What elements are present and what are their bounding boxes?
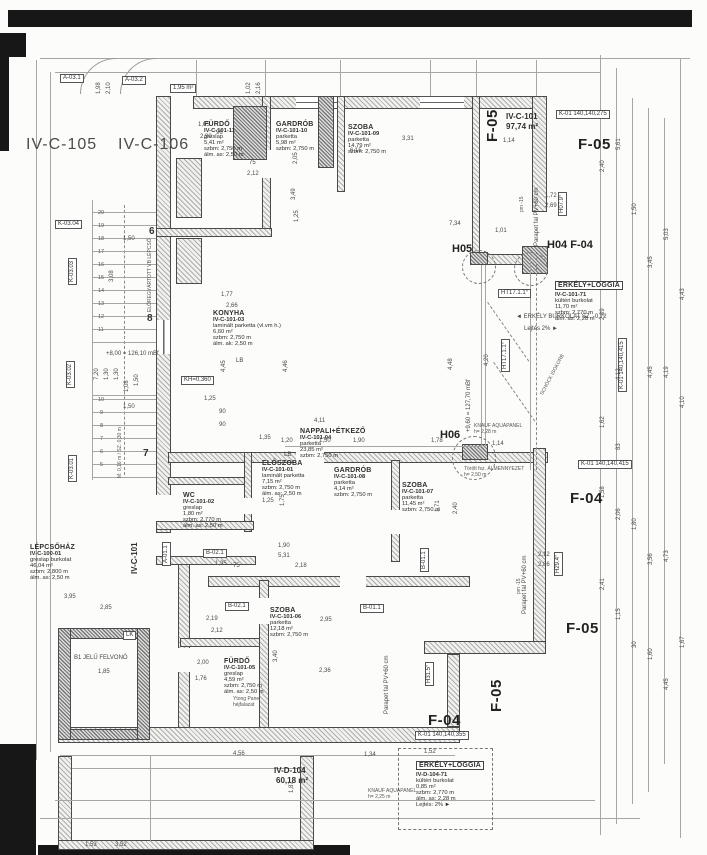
stair-step-number: 9 bbox=[100, 410, 103, 416]
boxed-mark: H29.4° bbox=[554, 552, 563, 576]
room-name: ELŐSZOBA bbox=[262, 460, 305, 467]
wall bbox=[337, 96, 345, 192]
door-opening bbox=[340, 576, 366, 587]
unit-area-label: IV-C-101 bbox=[506, 112, 538, 121]
dimension-label: 4,48 bbox=[448, 358, 455, 370]
facade-mark: F-05 bbox=[578, 136, 611, 154]
dimension-label: 75 bbox=[249, 160, 256, 167]
annotation-small: héjfalazat bbox=[233, 703, 254, 709]
dimension-label: 1,08 bbox=[124, 380, 131, 392]
boxed-mark: K-01 140,140,275 bbox=[556, 110, 610, 119]
dimension-label: 1,34 bbox=[364, 752, 376, 759]
dimension-label: 2,69 bbox=[545, 203, 557, 210]
wall bbox=[424, 641, 546, 654]
room-IV-C-101-06: SZOBAIV-C-101-06parketta12,18 m²szbm: 2,… bbox=[270, 607, 308, 638]
dimension-line bbox=[55, 800, 595, 801]
dimension-label: 4,20 bbox=[484, 354, 491, 366]
boxed-mark: K-01 140,140,355 bbox=[415, 731, 469, 740]
annotation: ◄ ERKÉLY BURKOLAT SZ. -0,72 bbox=[516, 314, 607, 321]
dimension-line bbox=[150, 756, 151, 842]
room-name: SZOBA bbox=[270, 607, 308, 614]
stair-step-number: 12 bbox=[98, 314, 104, 320]
dimension-label: 4,73 bbox=[664, 550, 671, 562]
annotation-small: h= 2,28 m bbox=[474, 430, 496, 436]
dimension-label: 2,41 bbox=[600, 578, 607, 590]
dimension-label: 7,20 bbox=[94, 368, 101, 380]
dimension-label: 2,40 bbox=[600, 160, 607, 172]
dimension-line bbox=[430, 60, 431, 96]
dimension-label: 4,19 bbox=[664, 366, 671, 378]
boxed-mark: HT17.1.1° bbox=[501, 339, 510, 372]
stair-step-number: 10 bbox=[98, 397, 104, 403]
dimension-label: 4,56 bbox=[233, 751, 245, 758]
stair-step-number: 11 bbox=[98, 327, 104, 333]
dimension-label: 2,12 bbox=[211, 628, 223, 635]
stair-step-number: 16 bbox=[98, 262, 104, 268]
scan-artifact bbox=[0, 744, 36, 855]
room-IV-D-104-71: ERKÉLY+LOGGIAIV-D-104-71kültéri burkolat… bbox=[416, 754, 484, 808]
stair-step-number: 17 bbox=[98, 249, 104, 255]
dimension-label: 4,43 bbox=[680, 288, 687, 300]
boxed-mark: LK bbox=[123, 631, 136, 640]
dimension-label: 75 bbox=[233, 563, 240, 570]
dimension-label: 7,34 bbox=[449, 221, 461, 228]
unit-area-label: IV-D-104 bbox=[274, 766, 306, 775]
dimension-line bbox=[40, 58, 690, 59]
dimension-label: 1,50 bbox=[123, 236, 135, 243]
dimension-label: 1,25 bbox=[204, 396, 216, 403]
dimension-label: 3,40 bbox=[273, 650, 280, 662]
dimension-label: 2,40 bbox=[453, 502, 460, 514]
dimension-label: 90 bbox=[219, 422, 226, 429]
annotation-small: pm -15 bbox=[517, 578, 523, 594]
dimension-label: 1,14 bbox=[503, 138, 515, 145]
dimension-label: 83 bbox=[616, 443, 623, 450]
room-name: KONYHA bbox=[213, 310, 281, 317]
dimension-label: 1,90 bbox=[278, 543, 290, 550]
boxed-mark: A-01.1 bbox=[162, 542, 171, 566]
annotation: LB bbox=[236, 358, 243, 365]
dimension-label: 1,14 bbox=[492, 441, 504, 448]
dimension-label: 96 bbox=[216, 130, 223, 137]
dimension-label: 2,66 bbox=[226, 303, 238, 310]
dimension-line bbox=[60, 755, 455, 756]
dimension-label: 3,95 bbox=[64, 594, 76, 601]
dimension-label: 2,95 bbox=[320, 617, 332, 624]
room-name: NAPPALI+ÉTKEZŐ bbox=[300, 428, 365, 435]
dimension-label: 2,86 bbox=[538, 562, 550, 569]
dimension-label: 1,67 bbox=[680, 636, 687, 648]
boxed-mark: B-02.1 bbox=[203, 549, 227, 558]
dimension-label: 5,31 bbox=[278, 553, 290, 560]
facade-mark: F-04 bbox=[570, 490, 603, 508]
dimension-label: 2,85 bbox=[100, 605, 112, 612]
boxed-mark: KH=0,360 bbox=[181, 376, 214, 385]
wall bbox=[180, 638, 260, 647]
dimension-label: 1,72 bbox=[545, 193, 557, 200]
dimension-label: 1,35 bbox=[215, 561, 227, 568]
door-opening bbox=[259, 598, 269, 624]
dimension-label: 1,58 bbox=[600, 486, 607, 498]
annotation: +8,00 = 126,10 mBf bbox=[106, 351, 159, 358]
window bbox=[420, 96, 464, 109]
dimension-line bbox=[36, 60, 37, 760]
dimension-label: 4,45 bbox=[221, 360, 228, 372]
dimension-label: 1,75 bbox=[280, 494, 287, 506]
annotation: Parapet fal PV+60 cm bbox=[522, 555, 529, 614]
stair-step-number: 5 bbox=[100, 462, 103, 468]
dimension-label: 1,01 bbox=[495, 228, 507, 235]
room-detail: álm. as: 2,50 m bbox=[224, 689, 264, 695]
dimension-label: 6,15 bbox=[350, 148, 362, 155]
annotation: LB bbox=[284, 452, 291, 459]
dimension-line bbox=[664, 118, 665, 764]
dimension-line bbox=[72, 768, 302, 769]
annotation-small: ELŐREGYÁRTOTT VB LÉPCSŐ bbox=[148, 238, 154, 312]
annotation: B1 JELŰ FELVONÓ bbox=[74, 655, 128, 662]
dimension-label: 3,56 bbox=[648, 553, 655, 565]
kitchen-fixture bbox=[176, 158, 202, 218]
boxed-mark: H07.9° bbox=[558, 192, 567, 216]
dimension-label: 3,49 bbox=[291, 188, 298, 200]
dimension-label: 1,98 bbox=[96, 82, 103, 94]
wall bbox=[472, 96, 480, 258]
stair-step-number: 13 bbox=[98, 301, 104, 307]
stair-step-number: 7 bbox=[100, 436, 103, 442]
wall bbox=[156, 228, 272, 237]
stair-step-number: 8 bbox=[100, 423, 103, 429]
unit-area-label: IV-C-101 bbox=[130, 542, 139, 574]
room-IV-C-101-03: KONYHAIV-C-101-03laminált parketta (vl.v… bbox=[213, 310, 281, 347]
grid-number: 7 bbox=[143, 448, 149, 460]
dimension-label: 4,46 bbox=[283, 360, 290, 372]
stair-tread-line bbox=[92, 342, 156, 343]
dimension-label: 90 bbox=[219, 409, 226, 416]
dimension-label: 3,08 bbox=[109, 270, 116, 282]
room-name: FÜRDŐ bbox=[224, 658, 264, 665]
dimension-label: 1,02 bbox=[246, 82, 253, 94]
kitchen-fixture bbox=[176, 238, 202, 284]
room-name: SZOBA bbox=[348, 124, 386, 131]
annotation-small: pm -15 bbox=[520, 196, 526, 212]
dimension-label: 1,50 bbox=[134, 374, 141, 386]
dimension-label: 2,06 bbox=[616, 508, 623, 520]
dimension-label: 1,78 bbox=[431, 438, 443, 445]
dimension-label: 1,50 bbox=[319, 438, 331, 445]
dimension-label: 4,45 bbox=[664, 678, 671, 690]
room-detail: álm. as: 2,50 m bbox=[30, 575, 75, 581]
boxed-mark: A-03.1 bbox=[60, 74, 84, 83]
joint-mark: H05 bbox=[452, 243, 472, 256]
dimension-label: 4,11 bbox=[314, 418, 325, 425]
dimension-label: 2,16 bbox=[256, 82, 263, 94]
window bbox=[156, 320, 171, 354]
stair-step-number: 14 bbox=[98, 288, 104, 294]
room-detail: szbm: 2,750 m bbox=[300, 453, 365, 459]
dimension-label: 2,05 bbox=[293, 152, 300, 164]
dimension-line bbox=[600, 55, 601, 835]
facade-mark: F-05 bbox=[566, 620, 599, 638]
dimension-label: 1,30 bbox=[104, 368, 111, 380]
dimension-label: 3,52 bbox=[115, 842, 127, 849]
dimension-label: 1,65 bbox=[198, 122, 210, 129]
dimension-line bbox=[476, 60, 477, 96]
facade-mark: F-04 bbox=[428, 712, 461, 730]
dimension-label: 2,19 bbox=[206, 616, 218, 623]
room-IV-C-100-01: LÉPCSŐHÁZIV-C-100-01greslap burkolat46,0… bbox=[30, 544, 75, 581]
dimension-line bbox=[340, 60, 341, 96]
room-detail: álm. ak: 2,50 m bbox=[213, 341, 281, 347]
room-detail: álm. as: 2,50 m bbox=[183, 523, 223, 529]
dimension-label: 1,71 bbox=[435, 500, 442, 512]
grid-number: 8 bbox=[147, 313, 153, 325]
wall bbox=[168, 477, 246, 485]
door-opening bbox=[391, 510, 400, 534]
dimension-label: 2,12 bbox=[247, 171, 259, 178]
room-name: SZOBA bbox=[402, 482, 440, 489]
dimension-line bbox=[536, 60, 537, 96]
annotation: Parapet fal PV+60 cm bbox=[534, 187, 541, 246]
elevator-wall bbox=[137, 628, 150, 740]
room-IV-C-101-10: GARDRÓBIV-C-101-10parketta5,98 m²szbm: 2… bbox=[276, 121, 314, 152]
door-opening bbox=[156, 495, 171, 521]
annotation-small: M: 0,16 m / SZ: 0,30 m bbox=[118, 427, 124, 478]
dimension-label: 1,25 bbox=[262, 498, 274, 505]
dimension-label: 2,90 bbox=[200, 134, 212, 141]
boxed-mark: A-03.2 bbox=[122, 76, 146, 85]
boxed-mark: K-03.01 bbox=[68, 455, 77, 482]
dimension-label: 4,12 bbox=[616, 368, 623, 380]
dimension-line bbox=[680, 58, 681, 838]
annotation: Parapet fal PV+60 cm bbox=[384, 655, 391, 714]
room-IV-C-101-08: GARDRÓBIV-C-101-08parketta4,14 m²szbm: 2… bbox=[334, 467, 372, 498]
grid-number: 6 bbox=[149, 226, 155, 238]
dimension-line bbox=[481, 265, 482, 446]
stair-step-number: 18 bbox=[98, 236, 104, 242]
dimension-line bbox=[265, 60, 266, 96]
dimension-label: 2,18 bbox=[295, 563, 307, 570]
door-opening bbox=[244, 498, 252, 514]
joint-mark: H04 F-04 bbox=[547, 239, 593, 252]
dimension-line bbox=[50, 72, 51, 752]
dimension-line bbox=[40, 818, 640, 819]
unit-area-label: 97,74 m² bbox=[506, 122, 538, 131]
dimension-label: 1,62 bbox=[600, 416, 607, 428]
dimension-label: 1,52 bbox=[424, 749, 436, 756]
boxed-mark: 1,95 m² bbox=[170, 84, 196, 93]
room-IV-C-101-05: FÜRDŐIV-C-101-05greslap4,59 m²szbm: 2,75… bbox=[224, 658, 264, 695]
room-detail: szbm: 2,750 m bbox=[270, 632, 308, 638]
dimension-label: 5,03 bbox=[664, 228, 671, 240]
neighbor-unit-label: IV-C-106 bbox=[118, 136, 189, 155]
dimension-label: 1,25 bbox=[294, 210, 301, 222]
dimension-label: 1,90 bbox=[353, 438, 365, 445]
dimension-label: 2,09 bbox=[600, 308, 607, 320]
stair-tread-line bbox=[92, 477, 156, 478]
dimension-label: 1,87 bbox=[289, 781, 296, 793]
stair-step-number: 6 bbox=[100, 449, 103, 455]
room-detail: szbm: 2,750 m bbox=[334, 492, 372, 498]
dimension-label: 1,77 bbox=[221, 292, 233, 299]
boxed-mark: K-03.04 bbox=[55, 220, 82, 229]
floor-plan-sheet: FÜRDŐIV-C-101-11greslap5,41 m²szbm: 2,75… bbox=[0, 0, 707, 855]
scan-artifact bbox=[8, 10, 692, 27]
boxed-mark: K-01 140,140,415 bbox=[618, 338, 627, 392]
neighbor-unit-label: IV-C-105 bbox=[26, 136, 97, 155]
door-opening bbox=[178, 648, 190, 672]
wall bbox=[208, 576, 470, 587]
scan-artifact bbox=[0, 33, 9, 151]
room-name: ERKÉLY+LOGGIA bbox=[416, 761, 484, 770]
boxed-mark: K-03.03 bbox=[68, 258, 77, 285]
room-name: LÉPCSŐHÁZ bbox=[30, 544, 75, 551]
boxed-mark: B-02.1 bbox=[225, 602, 249, 611]
room-detail: Lejtés: 2% ► bbox=[416, 802, 484, 808]
boxed-mark: B-01.1 bbox=[360, 604, 384, 613]
stair-step-number: 15 bbox=[98, 275, 104, 281]
dimension-label: 1,30 bbox=[114, 368, 121, 380]
annotation-small: SCHÖCK ISOKORB bbox=[540, 354, 567, 397]
room-detail: álm. as: 2,50 m bbox=[204, 152, 244, 158]
dashed-line bbox=[124, 205, 125, 475]
dimension-label: 2,10 bbox=[106, 82, 113, 94]
dimension-label: 4,10 bbox=[680, 396, 687, 408]
dimension-label: 1,50 bbox=[123, 404, 135, 411]
dimension-label: 1,80 bbox=[632, 518, 639, 530]
dimension-label: 1,60 bbox=[648, 648, 655, 660]
wall bbox=[156, 96, 171, 533]
dimension-label: 1,76 bbox=[195, 676, 207, 683]
boxed-mark: K-03.02 bbox=[66, 361, 75, 388]
shaft bbox=[318, 96, 334, 168]
dashed-line bbox=[536, 258, 537, 470]
room-name: ERKÉLY+LOGGIA bbox=[555, 281, 623, 290]
dimension-label: 5,61 bbox=[616, 138, 623, 150]
room-name: GARDRÓB bbox=[276, 121, 314, 128]
dimension-label: 4,45 bbox=[648, 366, 655, 378]
detail-circle-h04 bbox=[514, 252, 548, 286]
elevator-wall bbox=[58, 628, 71, 740]
boxed-mark: B-01.1 bbox=[420, 548, 429, 572]
dimension-label: 1,53 bbox=[85, 842, 97, 849]
dimension-label: 30 bbox=[632, 641, 639, 648]
stair-step-number: 19 bbox=[98, 223, 104, 229]
annotation-small: h= 2,25 m bbox=[368, 795, 390, 801]
wall bbox=[58, 756, 72, 848]
slope-line bbox=[493, 362, 535, 422]
dimension-label: 1,35 bbox=[259, 435, 271, 442]
dimension-label: 3,45 bbox=[648, 256, 655, 268]
wall bbox=[533, 448, 546, 654]
room-IV-C-101-02: WCIV-C-101-02greslap1,80 m²szbm: 2,770 m… bbox=[183, 492, 223, 529]
dimension-line bbox=[648, 108, 649, 792]
room-name: GARDRÓB bbox=[334, 467, 372, 474]
annotation: 1,85 bbox=[98, 669, 110, 676]
room-IV-C-101-01: ELŐSZOBAIV-C-101-01laminált parketta7,15… bbox=[262, 460, 305, 497]
stair-step-number: 20 bbox=[98, 210, 104, 216]
room-name: WC bbox=[183, 492, 223, 499]
annotation-small: h= 2,50 m bbox=[464, 473, 486, 479]
dimension-label: 1,15 bbox=[616, 608, 623, 620]
dimension-label: 2,12 bbox=[538, 552, 550, 559]
dimension-label: 2,00 bbox=[197, 660, 209, 667]
facade-mark: F-05 bbox=[488, 679, 506, 712]
boxed-mark: HT17.1.1° bbox=[498, 289, 531, 298]
facade-mark: F-05 bbox=[484, 109, 502, 142]
wall bbox=[244, 452, 252, 532]
boxed-mark: H31.5° bbox=[425, 662, 434, 686]
dimension-label: 2,36 bbox=[319, 668, 331, 675]
boxed-mark: K-01 140,140,415 bbox=[578, 460, 632, 469]
dimension-label: 1,50 bbox=[632, 203, 639, 215]
dimension-label: 1,20 bbox=[281, 438, 293, 445]
annotation: Lejtés 2% ► bbox=[524, 326, 558, 333]
annotation: +9,60 = 127,70 mBf bbox=[466, 379, 473, 432]
joint-mark: H06 bbox=[440, 429, 460, 442]
dimension-label: 3,31 bbox=[402, 136, 414, 143]
